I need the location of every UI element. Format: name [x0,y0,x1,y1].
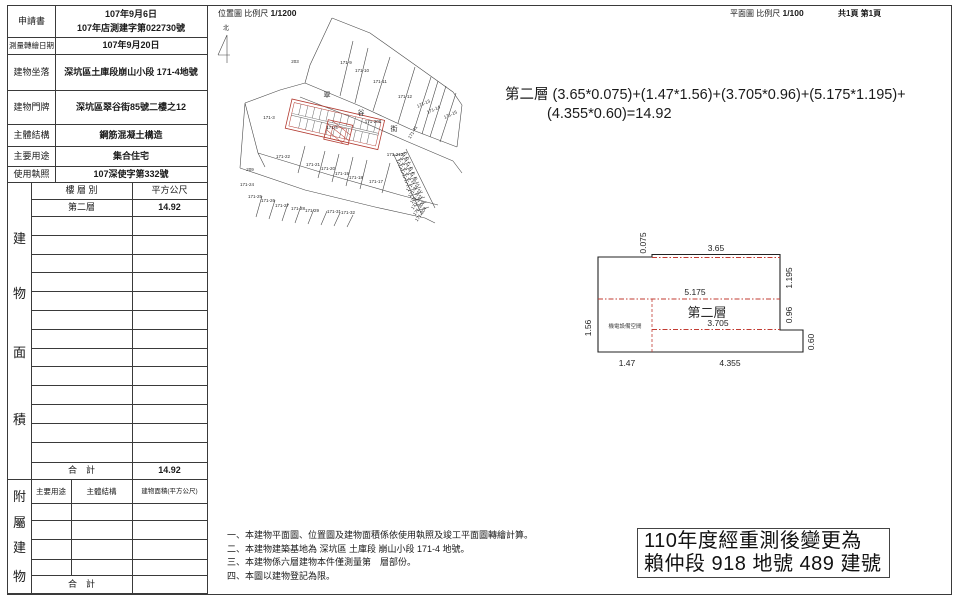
resurvey-stamp-box: 110年度經重測後變更為 賴仲段 918 地號 489 建號 [637,528,890,578]
dim-inner: 3.705 [707,318,729,328]
table-line [31,310,207,311]
parcel-label: 171-27 [275,203,290,208]
floor-plan-title: 平面圖 [730,9,754,18]
info-label: 主要用途 [8,146,55,166]
table-line [31,385,207,386]
notes-list: 一、本建物平面圖、位置圖及建物面積係依使用執照及竣工平面圖轉繪計算。二、本建物建… [227,529,533,583]
parcel-label: 171-3 [263,115,275,120]
parcel-label: 171-14 [426,104,441,114]
col-header-floor: 樓 層 別 [31,182,132,199]
street-name-char: 街 [391,124,398,133]
annex-col-use: 主要用途 [31,479,71,503]
area-total-value: 14.92 [132,462,207,479]
area-total-label: 合 計 [31,462,132,479]
area-formula: 第二層 (3.65*0.075)+(1.47*1.56)+(3.705*0.96… [505,86,906,124]
side-label-annex: 建 [8,537,31,556]
info-value: 107年店測建字第022730號 [55,21,207,35]
table-line [31,559,207,560]
table-line [31,366,207,367]
note-line: 三、本建物係六層建物本件僅測量第 層部份。 [227,556,533,570]
north-arrow-icon: 北 [218,24,230,63]
side-label-area: 建 [8,228,31,247]
info-value: 107深使字第332號 [55,166,207,182]
street-name-char: 谷 [358,108,365,117]
info-label: 主體結構 [8,124,55,146]
location-map: 北 翠谷街203171-9171-10171-11171-12171-13171… [210,5,470,235]
section-divider [207,5,208,595]
area-value-cell: 14.92 [132,199,207,216]
street-name-char: 翠 [324,91,331,99]
side-label-annex: 屬 [8,512,31,531]
table-line [132,182,133,593]
table-line [31,423,207,424]
parcel-label: 171-21 [306,162,321,167]
parcel-label: 171-13 [416,98,431,108]
col-header-area: 平方公尺 [132,182,207,199]
side-label-annex: 附 [8,486,31,505]
parcel-label: 171-9 [340,60,352,65]
parcel-label: 171-28 [291,206,306,211]
side-label-area: 物 [8,283,31,302]
table-line [31,272,207,273]
floor-plan-outline [598,255,803,353]
area-floor-cell: 第二層 [31,199,132,216]
table-line [31,182,32,593]
map-boundaries [240,18,462,227]
table-line [8,593,207,594]
dim-top-sliver: 0.075 [638,232,648,254]
note-line: 一、本建物平面圖、位置圖及建物面積係依使用執照及竣工平面圖轉繪計算。 [227,529,533,543]
table-line [31,520,207,521]
info-label: 建物坐落 [8,54,55,90]
table-line [31,329,207,330]
floor-plan-header: 平面圖 比例尺 1/100 [730,8,804,19]
dim-right-mid: 0.96 [784,306,794,323]
parcel-label: 171-18 [349,175,364,180]
info-label: 申請書 [8,5,55,37]
dim-right-upper: 1.195 [784,267,794,289]
dim-mid: 5.175 [684,287,706,297]
parcel-label: 171-31 [327,209,342,214]
formula-line-2: (4.355*0.60)=14.92 [505,105,906,124]
side-label-area: 面 [8,342,31,361]
parcel-label: 171-4 [326,125,338,130]
info-value: 深坑區土庫段崩山小段 171-4地號 [55,54,207,90]
table-line [31,291,207,292]
parcel-label: 171-19 [335,171,350,176]
table-line [31,216,207,217]
floor-plan-scale: 1/100 [782,8,803,18]
annex-total-label: 合 計 [31,575,132,593]
parcel-label: 171-12 [398,94,413,99]
table-line [31,503,207,504]
info-value: 集合住宅 [55,146,207,166]
table-line [31,254,207,255]
table-line [31,539,207,540]
scale-label: 比例尺 [756,9,780,18]
info-value: 深坑區翠谷街85號二樓之12 [55,90,207,124]
parcel-label: 171-29 [305,208,320,213]
annex-col-area: 建物面積(平方公尺) [132,479,207,503]
dim-right-low: 0.60 [806,333,816,350]
note-line: 四、本圖以建物登記為限。 [227,570,533,584]
table-line [31,235,207,236]
formula-line-1: 第二層 (3.65*0.075)+(1.47*1.56)+(3.705*0.96… [505,86,906,105]
parcel-label: 171-15 [443,109,458,119]
parcel-label: 171-32 [341,210,356,215]
parcel-label: 171-208 [365,119,382,124]
side-label-area: 積 [8,409,31,428]
dim-bottom-left: 1.47 [619,358,636,368]
parcel-label: 171-26 [261,198,276,203]
note-line: 二、本建物建築基地為 深坑區 土庫段 崩山小段 171-4 地號。 [227,543,533,557]
parcel-label: 171-10 [355,68,370,73]
table-line [31,442,207,443]
parcel-label: 171-11 [373,79,387,84]
page-count: 共1頁 第1頁 [838,8,881,19]
table-line [31,348,207,349]
parcel-label: 171-22 [276,154,291,159]
info-label: 使用執照 [8,166,55,182]
info-value: 鋼筋混凝土構造 [55,124,207,146]
table-line [31,404,207,405]
parcel-label: 203 [291,59,299,64]
parcel-label: 171-24 [240,182,255,187]
side-label-annex: 物 [8,566,31,585]
info-value: 107年9月6日 [55,7,207,21]
floor-plan-drawing: 0.075 3.65 1.195 5.175 第二層 0.96 3.705 1.… [585,225,835,380]
parcel-label: 209 [246,167,254,172]
mech-room-label: 機電設備空間 [608,322,642,330]
north-label: 北 [223,24,229,32]
parcel-label: 171-20 [321,166,336,171]
annex-col-structure: 主體結構 [71,479,132,503]
info-label: 建物門牌 [8,90,55,124]
info-value: 107年9月20日 [55,37,207,54]
parcel-label: 171-41 [407,125,419,140]
dim-bottom-right: 4.355 [719,358,741,368]
stamp-line-2: 賴仲段 918 地號 489 建號 [644,553,889,576]
parcel-label: 171-17 [369,179,384,184]
dim-top: 3.65 [708,243,725,253]
document-page: 位置圖 比例尺 1/1200 平面圖 比例尺 1/100 共1頁 第1頁 第二層… [0,0,960,601]
stamp-line-1: 110年度經重測後變更為 [644,530,889,553]
info-label: 測量轉繪日期 [8,37,55,54]
dim-left: 1.56 [585,319,593,336]
